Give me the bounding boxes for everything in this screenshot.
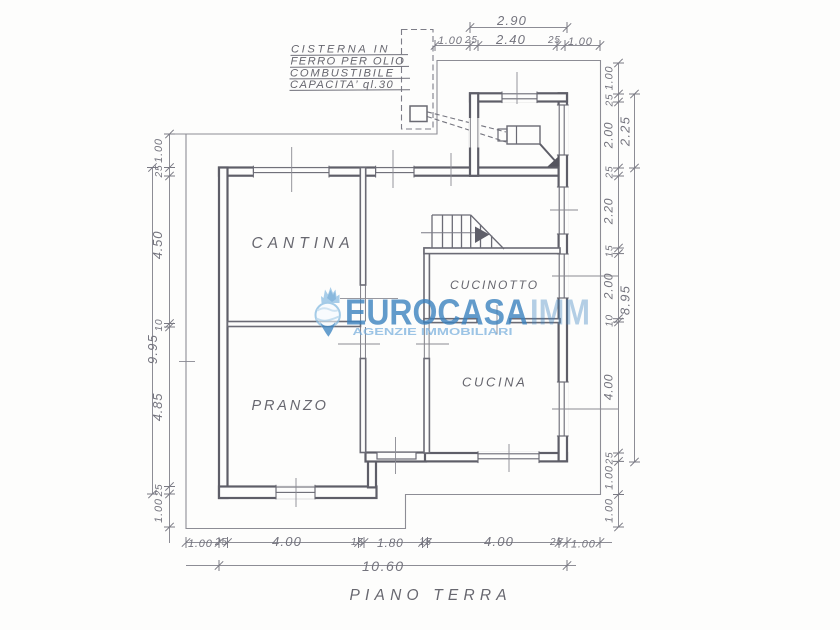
svg-text:1.00: 1.00 xyxy=(438,35,463,47)
svg-text:25: 25 xyxy=(154,484,165,498)
svg-text:AGENZIE IMMOBILIARI: AGENZIE IMMOBILIARI xyxy=(353,327,513,338)
svg-text:10.60: 10.60 xyxy=(362,558,405,574)
svg-text:1.00: 1.00 xyxy=(604,465,616,490)
svg-text:25: 25 xyxy=(464,35,478,46)
svg-text:2.40: 2.40 xyxy=(495,32,526,47)
svg-text:25: 25 xyxy=(605,452,616,466)
svg-text:CAPACITA’ ql.30: CAPACITA’ ql.30 xyxy=(290,79,394,91)
svg-text:1.00: 1.00 xyxy=(188,538,213,550)
svg-text:CISTERNA IN: CISTERNA IN xyxy=(291,44,390,56)
svg-text:CUCINA: CUCINA xyxy=(462,375,527,390)
svg-text:1.80: 1.80 xyxy=(377,536,404,550)
svg-text:COMBUSTIBILE: COMBUSTIBILE xyxy=(290,67,395,79)
svg-text:25: 25 xyxy=(547,35,561,46)
svg-text:CANTINA: CANTINA xyxy=(252,235,355,252)
svg-text:2.00: 2.00 xyxy=(602,122,616,150)
svg-text:25: 25 xyxy=(214,537,228,548)
svg-text:CUCINOTTO: CUCINOTTO xyxy=(450,278,539,292)
svg-text:15: 15 xyxy=(419,537,432,548)
svg-text:2.90: 2.90 xyxy=(496,13,527,28)
svg-text:10: 10 xyxy=(605,314,616,327)
svg-text:25: 25 xyxy=(605,94,616,108)
svg-text:25: 25 xyxy=(605,166,616,180)
svg-text:1.00: 1.00 xyxy=(604,66,616,91)
svg-text:8.95: 8.95 xyxy=(618,285,633,315)
svg-text:1.00: 1.00 xyxy=(571,539,596,551)
svg-text:IMM: IMM xyxy=(530,292,590,333)
svg-text:1.00: 1.00 xyxy=(568,36,593,48)
svg-text:15: 15 xyxy=(605,245,616,258)
svg-text:4.50: 4.50 xyxy=(150,231,165,260)
svg-text:1.00: 1.00 xyxy=(604,498,616,523)
svg-text:9.95: 9.95 xyxy=(145,334,160,364)
svg-text:4.85: 4.85 xyxy=(150,393,165,422)
svg-text:1.00: 1.00 xyxy=(153,498,165,523)
svg-text:25: 25 xyxy=(549,537,563,548)
svg-text:15: 15 xyxy=(351,537,364,548)
svg-text:10: 10 xyxy=(154,319,165,332)
svg-text:PRANZO: PRANZO xyxy=(252,398,329,414)
svg-text:4.00: 4.00 xyxy=(484,534,514,549)
svg-text:FERRO PER OLIO: FERRO PER OLIO xyxy=(291,56,406,68)
svg-text:2.00: 2.00 xyxy=(602,273,616,301)
svg-text:2.25: 2.25 xyxy=(618,116,633,147)
svg-text:2.20: 2.20 xyxy=(602,198,616,226)
svg-text:4.00: 4.00 xyxy=(602,374,616,401)
svg-text:4.00: 4.00 xyxy=(272,534,302,549)
svg-text:1.00: 1.00 xyxy=(153,138,165,163)
svg-text:PIANO TERRA: PIANO TERRA xyxy=(350,587,512,604)
svg-text:25: 25 xyxy=(154,165,165,179)
